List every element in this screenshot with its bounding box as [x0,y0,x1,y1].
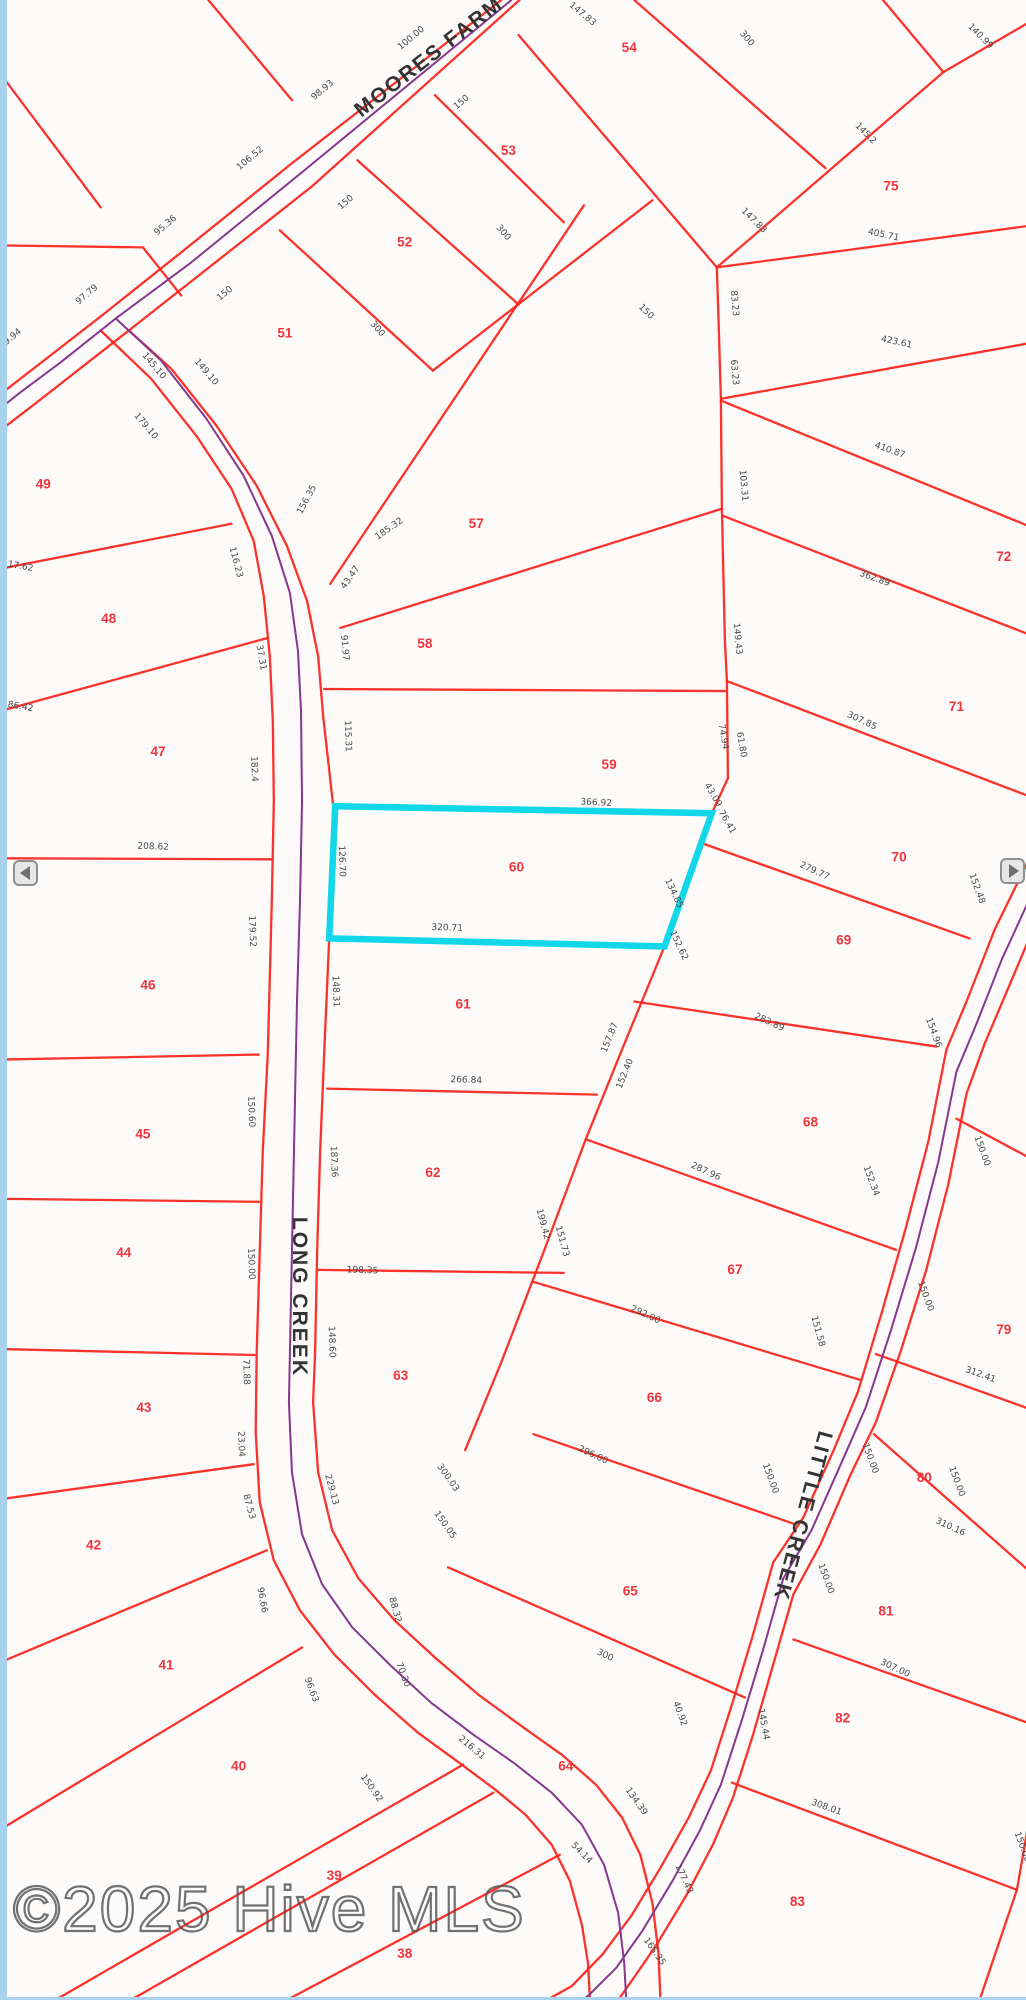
lot-number-48: 48 [101,611,117,626]
parcel-boundary-line [7,638,268,711]
dimension-label: 283.89 [753,1012,786,1034]
left-arrow-icon [20,866,30,880]
dimension-label: 151.58 [809,1315,827,1348]
parcel-boundary-line [7,1199,259,1202]
dimension-label: 54.14 [569,1841,595,1866]
lot-number-42: 42 [86,1537,101,1552]
dimension-label: 71.88 [240,1359,251,1385]
dimension-label: 312.41 [964,1365,997,1385]
parcel-boundary-line [876,1354,1026,1410]
dimension-label: 150 [452,93,472,112]
dimension-label: 152.48 [966,872,986,905]
lot-number-58: 58 [417,636,433,651]
dimension-label: 216.31 [456,1734,487,1762]
dimension-label: 116.23 [227,546,245,579]
dimension-label: 405.71 [867,227,900,243]
dimension-label: 151.73 [553,1225,571,1258]
lot-number-65: 65 [623,1583,639,1598]
parcel-boundary-line [433,200,652,370]
dimension-label: 198.35 [347,1265,379,1276]
dimension-label: 366.92 [580,797,612,809]
previous-photo-button[interactable] [13,860,38,886]
parcel-boundary-line [722,343,1026,399]
dimension-label: 150.00 [946,1465,966,1498]
dimension-label: 150.05 [431,1509,457,1540]
plat-map-svg: 100.0098.93106.5295.3697.7999.9415015015… [7,0,1026,1997]
parcel-boundary-line [956,1119,1026,1160]
lot-number-61: 61 [456,997,472,1012]
dimension-label: 91.97 [338,635,350,662]
parcel-boundary-line [534,1434,796,1524]
plat-map-image: 100.0098.93106.5295.3697.7999.9415015015… [7,0,1026,1997]
dimension-label: 150.00 [1012,1831,1026,1864]
dimension-label: 296.00 [576,1444,609,1466]
parcel-boundary-line [7,1647,302,1829]
lot-number-45: 45 [135,1127,151,1142]
lot-number-47: 47 [150,744,165,759]
lot-number-53: 53 [501,143,517,158]
dimension-label: 156.35 [295,484,319,516]
parcel-boundary-line [7,1550,267,1662]
dimension-label: 76.41 [716,809,738,836]
dimension-label: 300 [368,319,387,339]
parcel-boundary-line [7,1349,255,1355]
parcel-boundary-line [518,35,716,267]
dimension-label: 150.60 [245,1096,256,1128]
dimension-label: 145.10 [140,351,168,382]
parcel-boundary-line [727,681,1026,796]
dimension-label: 150.00 [815,1562,835,1595]
right-arrow-icon [1009,864,1019,878]
dimension-label: 40.92 [670,1700,688,1728]
lot-number-81: 81 [878,1603,894,1618]
parcel-boundary-line [7,73,101,207]
parcel-boundary-line [883,0,943,72]
lot-number-72: 72 [996,549,1011,564]
lot-number-57: 57 [469,516,484,531]
dimension-label: 70.30 [393,1661,411,1689]
lot-number-52: 52 [397,234,412,249]
parcel-boundary-line [448,1567,745,1697]
parcel-boundary-line [327,1089,597,1095]
parcel-boundary-line [534,1282,861,1380]
parcel-boundary-line [7,524,232,569]
dimension-label: 149.43 [731,623,744,655]
dimension-label: 300.03 [434,1462,461,1494]
lot-number-43: 43 [136,1400,152,1415]
dimension-label: 150.00 [760,1462,780,1495]
dimension-label: 97.79 [74,283,100,307]
lot-number-69: 69 [836,932,852,947]
next-photo-button[interactable] [1000,858,1025,884]
parcel-boundary-line [435,95,564,222]
lot-number-79: 79 [996,1322,1012,1337]
lot-number-63: 63 [393,1368,409,1383]
lot-number-54: 54 [622,40,638,55]
dimension-label: 300 [595,1648,615,1664]
dimension-label: 148.31 [330,976,341,1008]
dimension-label: 126.70 [336,845,347,877]
dimension-label: 177.43 [672,1863,695,1896]
lot-number-62: 62 [425,1165,440,1180]
lot-number-83: 83 [790,1894,806,1909]
dimension-label: 96.63 [302,1676,320,1704]
dimension-label: 208.62 [137,842,169,853]
dimension-label: 150.00 [245,1248,256,1280]
parcel-boundary-line [7,1464,254,1499]
parcel-boundary-line [280,230,433,370]
dimension-label: 23.04 [235,1431,246,1457]
highlighted-lot-60-outline [329,806,712,946]
dimension-label: 147.83 [739,206,769,235]
dimension-label: 152.34 [861,1165,881,1198]
parcel-boundary-line [7,1055,259,1060]
lot-number-71: 71 [949,699,965,714]
lot-number-82: 82 [835,1711,850,1726]
dimension-label: 145.44 [755,1708,770,1741]
lot-number-80: 80 [917,1470,932,1485]
dimension-label: 63.23 [728,359,740,386]
parcel-boundary-line [587,1140,896,1250]
dimension-label: 179.52 [246,915,257,947]
parcel-boundary-line [793,1639,1026,1724]
parcel-boundary-line [721,401,1026,528]
dimension-label: 98.93 [310,78,336,102]
lot-number-75: 75 [883,178,899,193]
dimension-label: 266.84 [450,1075,482,1086]
parcel-boundary-line [717,267,728,778]
lot-number-38: 38 [397,1946,413,1961]
dimension-label: 148.60 [326,1326,337,1358]
dimension-label: 292.00 [629,1304,662,1326]
lot-number-40: 40 [231,1759,246,1774]
lot-number-68: 68 [803,1115,819,1130]
dimension-label: 310.16 [934,1516,967,1538]
parcel-boundary-line [874,1434,1026,1574]
dimension-label: 150.00 [860,1442,880,1475]
parcel-boundary-line [208,0,292,100]
dimension-label: 150 [215,284,235,303]
dimension-label: 410.87 [873,441,906,461]
dimension-label: 187.36 [328,1146,339,1178]
lot-number-66: 66 [647,1390,663,1405]
dimension-label: 150 [636,302,655,321]
parcel-boundary-line [7,858,272,859]
dimension-label: 179.10 [131,411,159,442]
dimension-label: 150.92 [358,1773,384,1804]
parcel-boundary-line [129,330,661,1997]
dimension-label: 320.71 [431,923,463,934]
dimension-label: 145.2 [853,121,878,146]
parcel-boundary-line [705,844,970,938]
dimension-label: 106.52 [235,145,266,173]
lot-number-60: 60 [509,859,524,874]
road-name-label: MOORES FARM [350,0,507,122]
dimension-label: 99.94 [7,327,24,351]
dimension-label: 300 [494,223,513,243]
dimension-label: 61.80 [734,731,748,758]
lot-number-41: 41 [159,1658,175,1673]
dimension-label: 149.10 [192,357,220,388]
mls-watermark: ©2025 Hive MLS [13,1872,526,1946]
dimension-label: 199.42 [534,1208,552,1241]
listing-photo-viewer: { "page": { "background_color": "#a9d2ee… [0,0,1026,2000]
lot-number-59: 59 [602,757,618,772]
road-name-label: LONG CREEK [288,1217,311,1377]
dimension-label: 150 [336,193,356,212]
parcel-boundary-line [324,689,725,691]
dimension-label: 152.62 [667,929,689,962]
lot-number-46: 46 [140,978,156,993]
dimension-label: 43.47 [339,564,362,591]
parcel-boundary-line [357,160,518,304]
parcel-boundary-line [732,1783,1017,1890]
dimension-label: 140.99 [965,22,995,51]
dimension-label: 134.39 [623,1786,650,1818]
road-centerline [579,891,1026,1997]
dimension-label: 87.53 [240,1493,256,1521]
dimension-label: 147.83 [567,1,598,29]
dimension-label: 96.66 [255,1587,269,1614]
dimension-label: 37.31 [254,644,268,671]
parcel-boundary-line [980,1798,1026,1997]
dimension-label: 150.00 [971,1135,991,1168]
dimension-label: 83.23 [728,290,740,317]
dimension-label: 95.36 [153,214,179,238]
dimension-label: 157.87 [600,1021,621,1054]
dimension-label: 300 [737,29,756,49]
dimension-label: 115.31 [342,720,353,752]
lot-number-51: 51 [277,326,293,341]
dimension-label: 362.89 [858,569,891,589]
lot-number-64: 64 [558,1759,574,1774]
dimension-label: 88.32 [386,1596,402,1623]
dimension-label: 185.32 [374,516,406,542]
parcel-boundary-line [330,205,584,584]
dimension-label: 423.61 [880,334,913,350]
lot-number-44: 44 [116,1245,132,1260]
lot-number-67: 67 [727,1262,742,1277]
dimension-label: 287.96 [689,1161,722,1183]
lot-number-49: 49 [36,477,52,492]
parcel-boundary-line [634,0,825,168]
dimension-label: 103.31 [737,469,750,501]
dimension-label: 182.4 [248,756,259,782]
lot-number-70: 70 [892,849,907,864]
